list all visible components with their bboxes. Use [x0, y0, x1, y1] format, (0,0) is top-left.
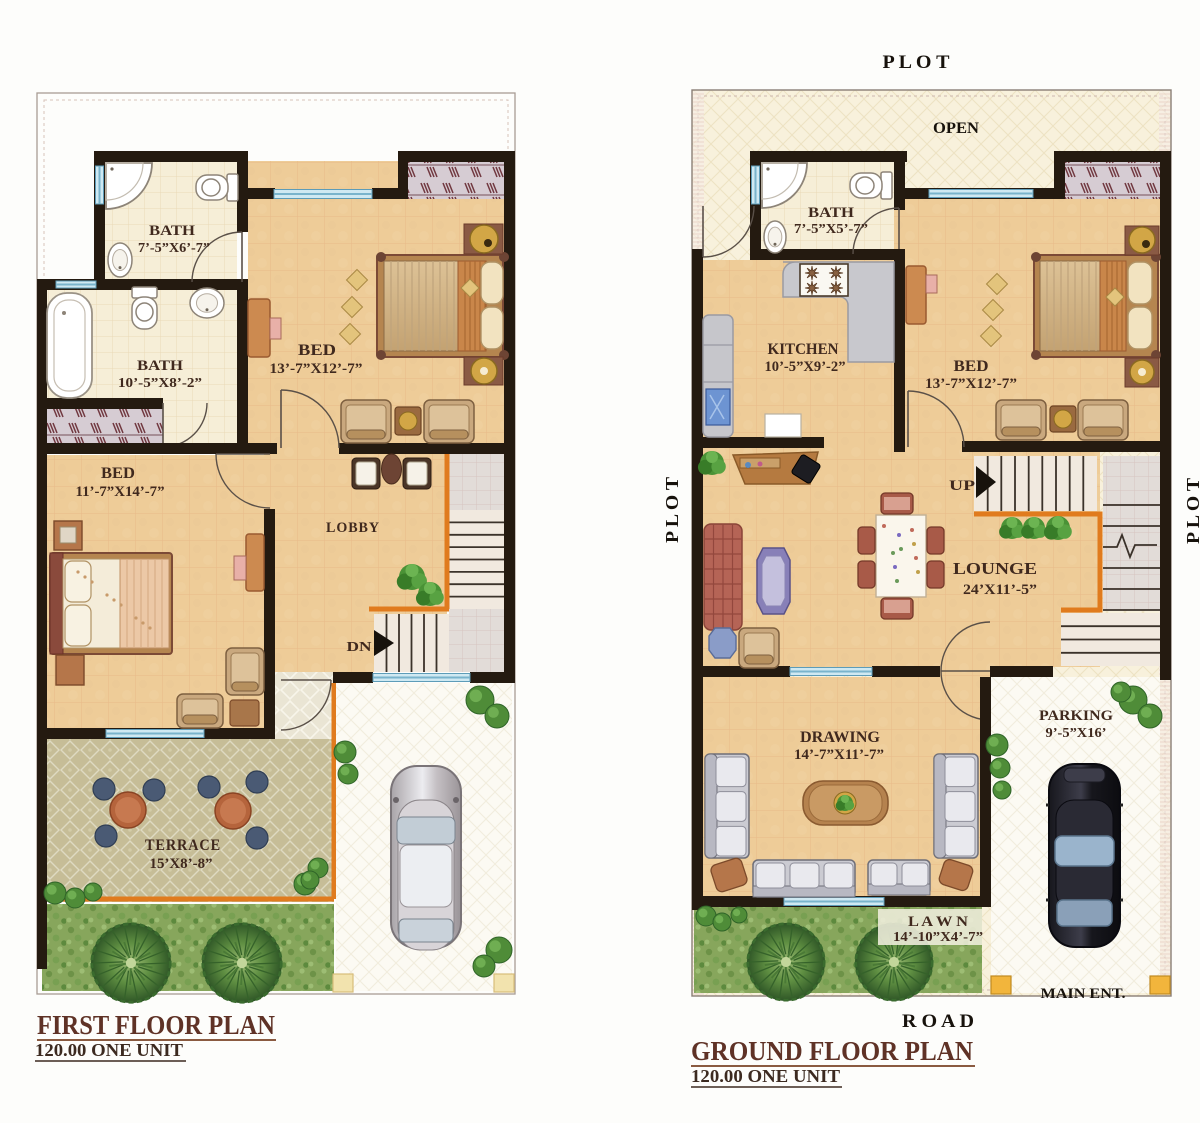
svg-text:P L O T: P L O T: [883, 52, 950, 73]
svg-text:MAIN ENT.: MAIN ENT.: [1041, 986, 1126, 1002]
svg-text:15’X8’-8”: 15’X8’-8”: [150, 856, 213, 872]
svg-text:BED: BED: [298, 342, 336, 359]
svg-text:14’-10”X4’-7”: 14’-10”X4’-7”: [893, 929, 983, 944]
svg-text:GROUND FLOOR PLAN: GROUND FLOOR PLAN: [691, 1036, 973, 1066]
svg-text:DRAWING: DRAWING: [800, 729, 881, 746]
svg-text:7’-5”X5’-7”: 7’-5”X5’-7”: [794, 222, 868, 237]
svg-text:9’-5”X16’: 9’-5”X16’: [1046, 726, 1107, 741]
svg-text:120.00 ONE UNIT: 120.00 ONE UNIT: [35, 1040, 183, 1060]
svg-text:13’-7”X12’-7”: 13’-7”X12’-7”: [925, 376, 1017, 392]
svg-text:BATH: BATH: [808, 205, 854, 221]
svg-text:KITCHEN: KITCHEN: [768, 341, 839, 358]
svg-text:LOBBY: LOBBY: [326, 520, 380, 536]
svg-text:DN: DN: [347, 640, 372, 655]
svg-text:P L O T: P L O T: [662, 477, 682, 543]
svg-text:R O A D: R O A D: [902, 1011, 974, 1032]
svg-text:P L O T: P L O T: [1183, 478, 1200, 544]
svg-text:BED: BED: [954, 358, 989, 375]
svg-text:10’-5”X8’-2”: 10’-5”X8’-2”: [118, 376, 202, 391]
svg-text:L A W N: L A W N: [908, 914, 968, 930]
svg-text:120.00 ONE UNIT: 120.00 ONE UNIT: [691, 1066, 840, 1086]
svg-text:7’-5”X6’-7”: 7’-5”X6’-7”: [138, 241, 210, 256]
svg-text:UP: UP: [949, 478, 975, 494]
svg-text:24’X11’-5”: 24’X11’-5”: [963, 582, 1037, 598]
svg-text:LOUNGE: LOUNGE: [953, 559, 1037, 578]
svg-text:FIRST FLOOR PLAN: FIRST FLOOR PLAN: [37, 1010, 275, 1040]
svg-text:OPEN: OPEN: [933, 120, 979, 137]
svg-text:10’-5”X9’-2”: 10’-5”X9’-2”: [765, 359, 846, 375]
svg-text:11’-7”X14’-7”: 11’-7”X14’-7”: [76, 484, 165, 500]
svg-text:14’-7”X11’-7”: 14’-7”X11’-7”: [794, 747, 884, 763]
svg-text:TERRACE: TERRACE: [145, 837, 221, 854]
svg-text:13’-7”X12’-7”: 13’-7”X12’-7”: [270, 361, 363, 377]
svg-text:BATH: BATH: [137, 358, 183, 374]
svg-text:BED: BED: [101, 465, 135, 482]
svg-text:PARKING: PARKING: [1039, 708, 1113, 724]
svg-text:BATH: BATH: [149, 223, 195, 239]
